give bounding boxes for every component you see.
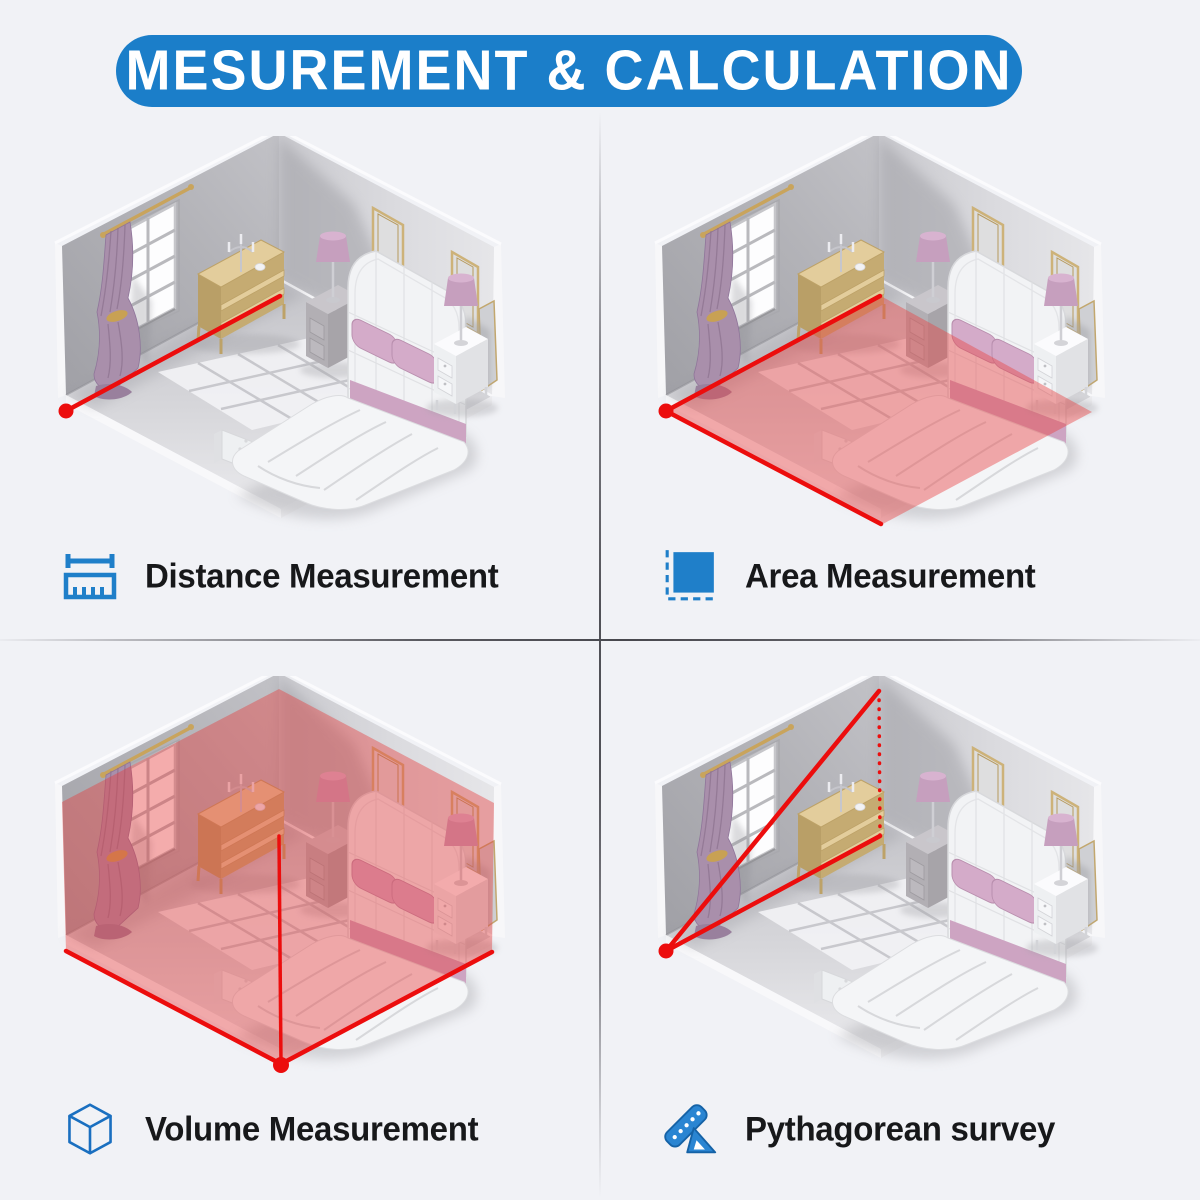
infographic-page: MESUREMENT & CALCULATION bbox=[0, 0, 1200, 1200]
caption-volume-label: Volume Measurement bbox=[145, 1109, 478, 1149]
caption-volume: Volume Measurement bbox=[0, 1098, 600, 1160]
room-render-volume bbox=[0, 676, 600, 1100]
distance-ruler-icon bbox=[62, 548, 118, 604]
caption-pythagorean-label: Pythagorean survey bbox=[745, 1109, 1055, 1149]
vertical-divider bbox=[599, 112, 601, 1198]
page-title: MESUREMENT & CALCULATION bbox=[126, 39, 1013, 103]
caption-area: Area Measurement bbox=[600, 545, 1200, 607]
header-banner: MESUREMENT & CALCULATION bbox=[116, 35, 1022, 107]
area-square-icon bbox=[662, 548, 718, 604]
caption-area-label: Area Measurement bbox=[745, 556, 1036, 596]
caption-pythagorean: Pythagorean survey bbox=[600, 1098, 1200, 1160]
set-square-icon bbox=[662, 1101, 718, 1157]
caption-distance-label: Distance Measurement bbox=[145, 556, 498, 596]
caption-distance: Distance Measurement bbox=[0, 545, 600, 607]
room-render-distance bbox=[0, 136, 600, 560]
room-render-pythagorean bbox=[600, 676, 1200, 1100]
room-render-area bbox=[600, 136, 1200, 560]
horizontal-divider bbox=[0, 639, 1200, 641]
volume-cube-icon bbox=[62, 1101, 118, 1157]
